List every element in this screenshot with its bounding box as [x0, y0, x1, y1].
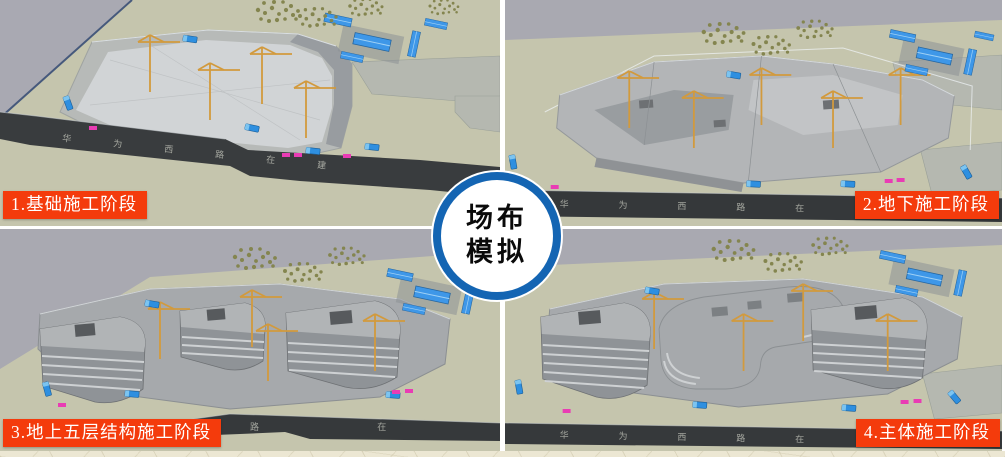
magenta-marker-icon — [282, 153, 290, 157]
phase-4-render: 华 为 西 路 在 — [505, 229, 1002, 451]
parking-pad — [922, 365, 1002, 419]
magenta-marker-icon — [885, 179, 893, 183]
title-badge: 场布 模拟 — [433, 172, 561, 300]
truck-icon — [306, 147, 321, 154]
truck-icon — [365, 143, 380, 150]
site-simulation-slide: 华 为 西 路 在 建 — [0, 0, 1005, 457]
truck-icon — [842, 405, 856, 412]
building-block — [286, 301, 400, 389]
magenta-marker-icon — [914, 399, 922, 403]
magenta-marker-icon — [563, 409, 571, 413]
phase-4-panel: 华 为 西 路 在 — [505, 229, 1002, 451]
phase-3-label: 3.地上五层结构施工阶段 — [3, 419, 221, 447]
magenta-marker-icon — [343, 154, 351, 158]
title-badge-line2: 模拟 — [466, 236, 528, 270]
phase-3-render: 路 在 建 — [0, 229, 500, 451]
title-badge-line1: 场布 — [466, 202, 528, 236]
magenta-marker-icon — [58, 403, 66, 407]
phase-3-panel: 路 在 建 — [0, 229, 500, 451]
magenta-marker-icon — [551, 185, 559, 189]
phase-4-label: 4.主体施工阶段 — [856, 419, 1000, 447]
truck-icon — [693, 402, 707, 409]
phase-1-label: 1.基础施工阶段 — [3, 191, 147, 219]
road-name-text: 路 在 建 — [250, 421, 500, 432]
magenta-marker-icon — [89, 126, 97, 130]
truck-icon — [746, 181, 760, 188]
magenta-marker-icon — [294, 153, 302, 157]
phase-2-label: 2.地下施工阶段 — [855, 191, 999, 219]
truck-icon — [841, 181, 855, 188]
building-block — [541, 303, 650, 399]
phase-2-panel: 华 为 西 路 在 — [505, 0, 1002, 226]
building-block — [40, 317, 145, 403]
truck-icon — [125, 390, 139, 397]
magenta-marker-icon — [392, 390, 400, 394]
magenta-marker-icon — [405, 389, 413, 393]
magenta-marker-icon — [897, 178, 905, 182]
magenta-marker-icon — [901, 400, 909, 404]
phase-1-panel: 华 为 西 路 在 建 — [0, 0, 500, 226]
